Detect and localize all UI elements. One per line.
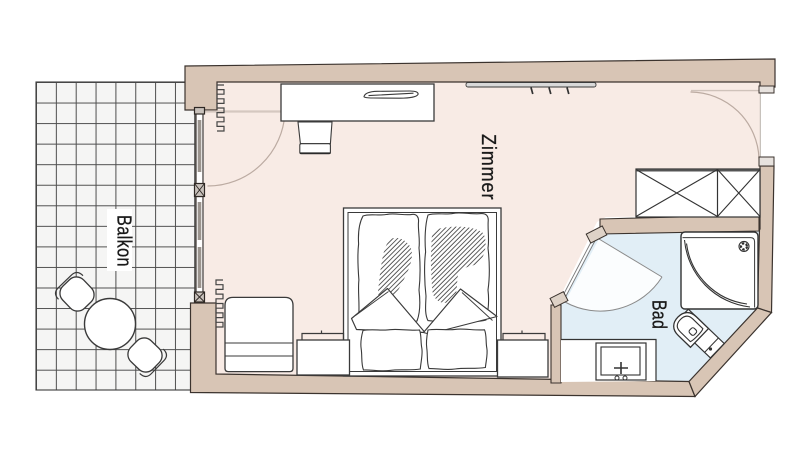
- svg-text:Balkon: Balkon: [113, 215, 135, 267]
- svg-text:Zimmer: Zimmer: [477, 134, 499, 200]
- svg-text:Bad: Bad: [648, 300, 670, 329]
